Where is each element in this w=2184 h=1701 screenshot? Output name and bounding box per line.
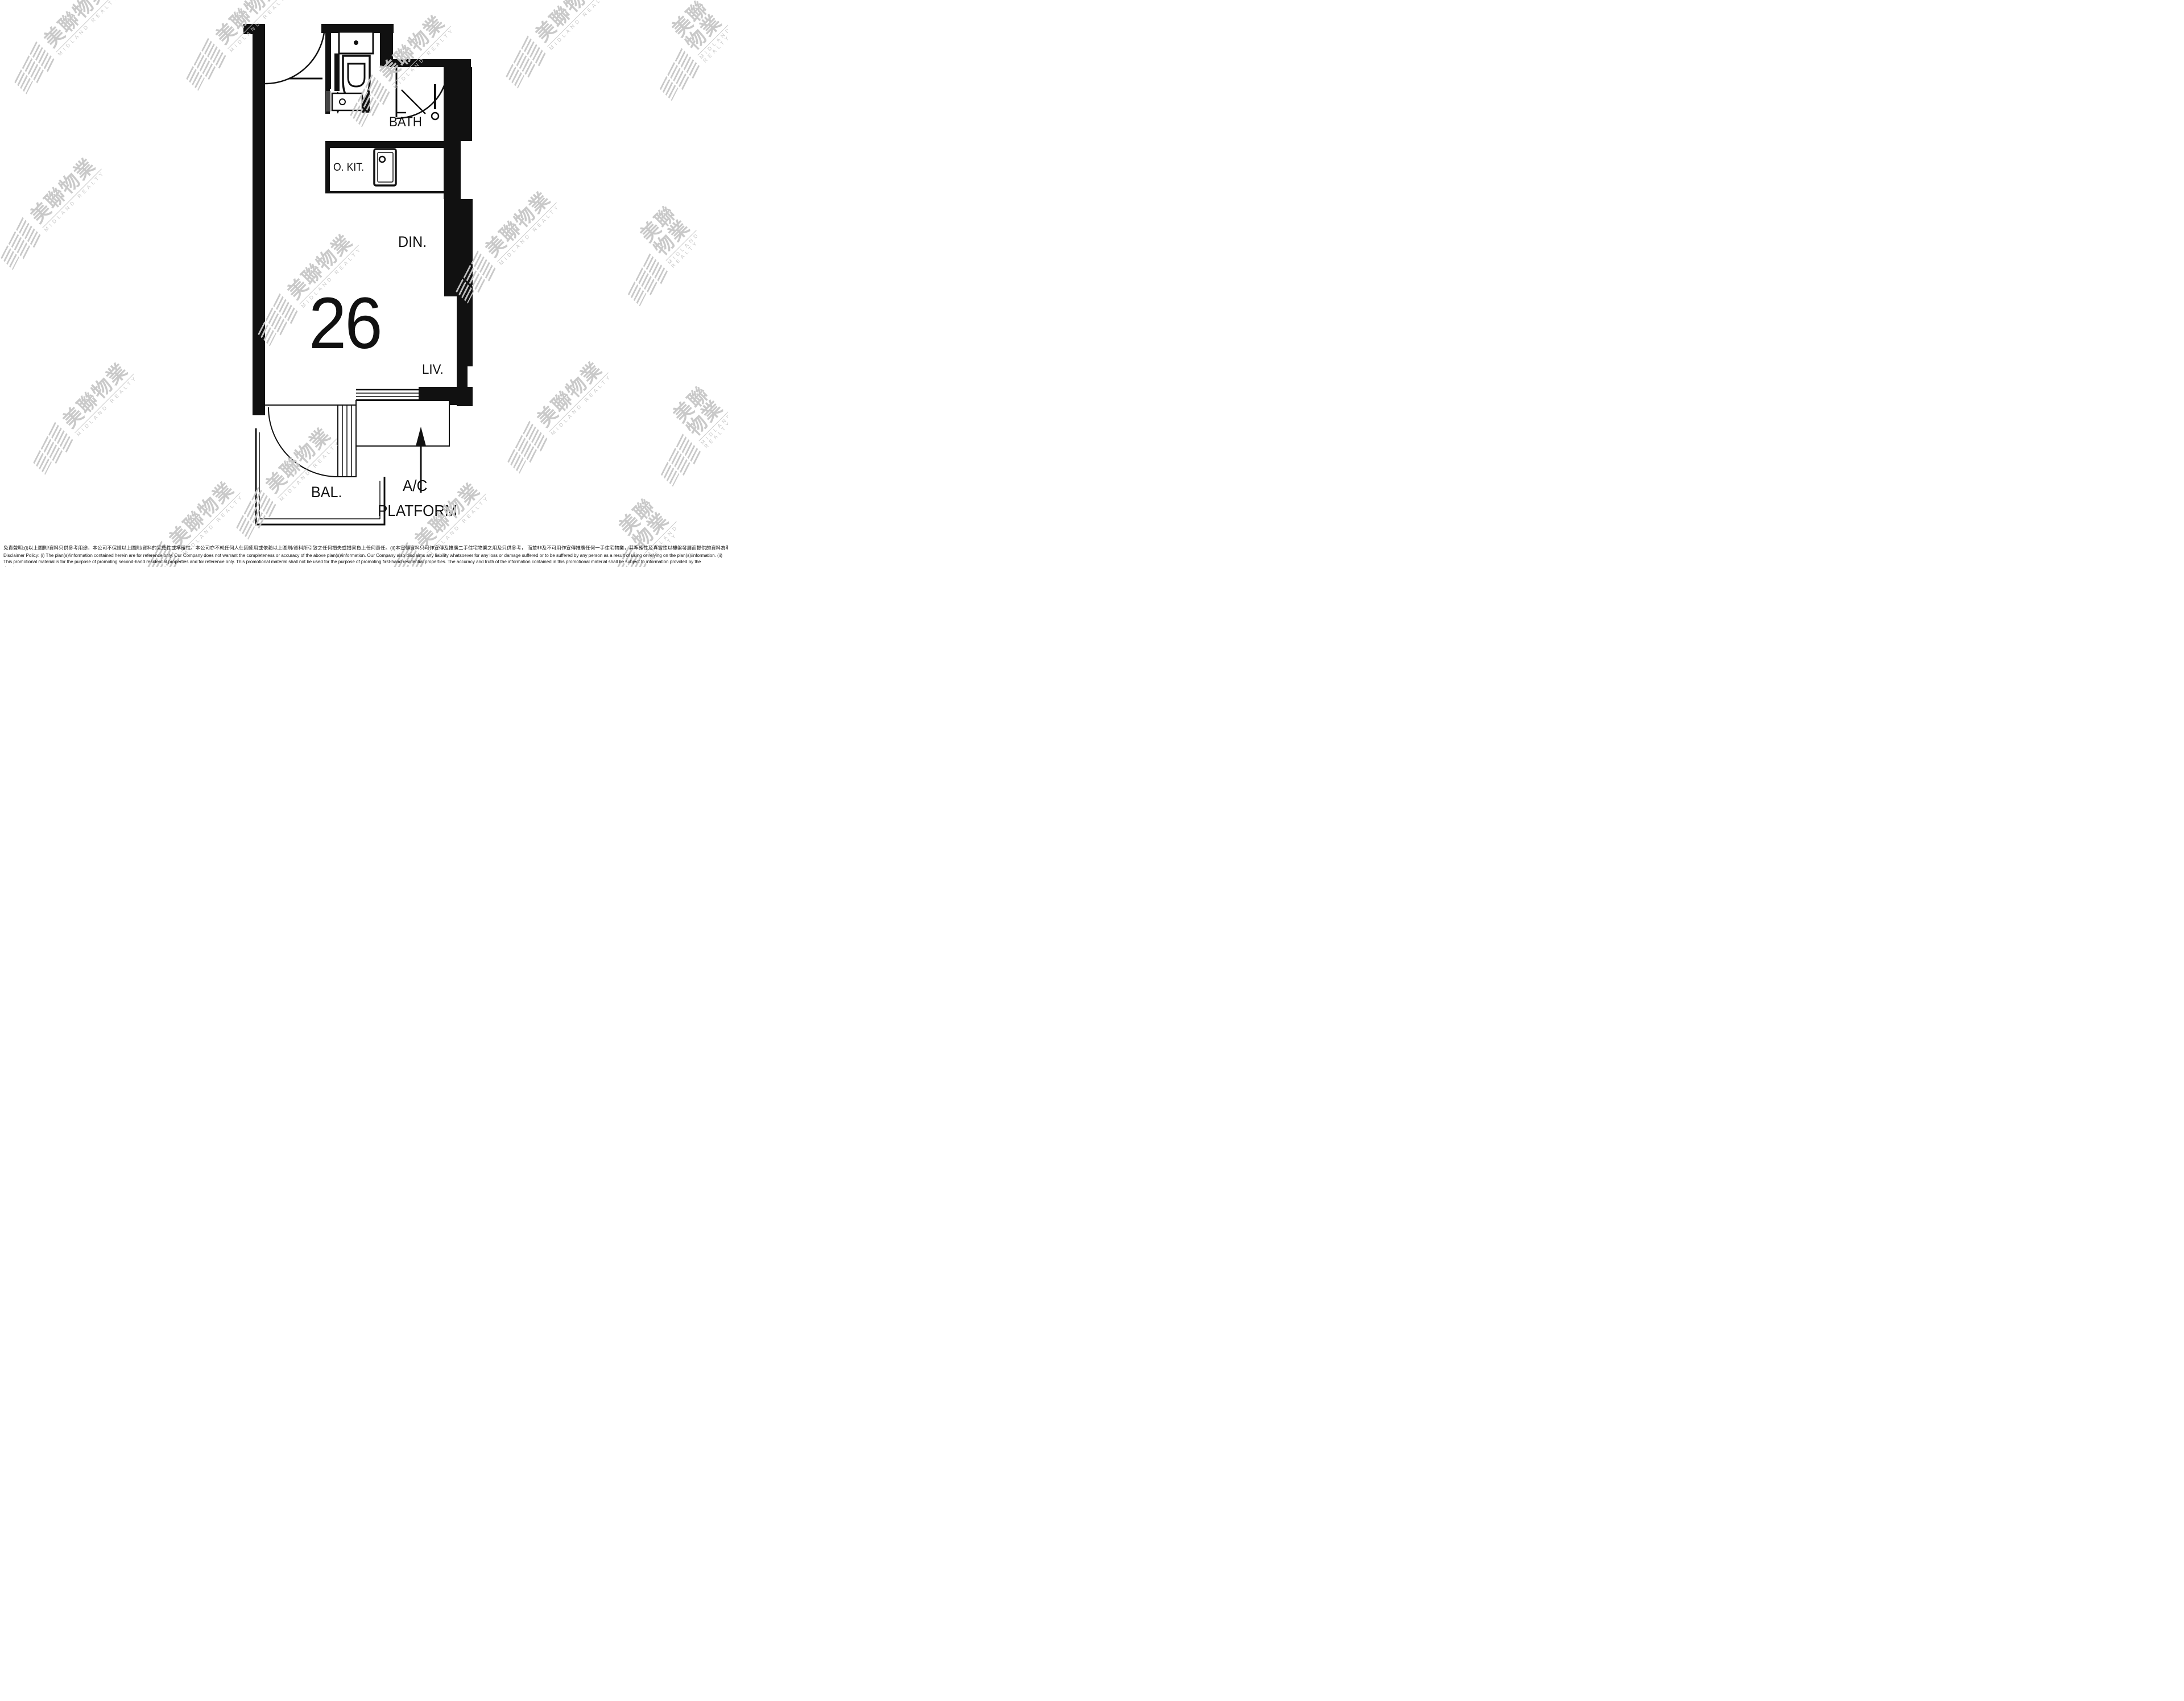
toilet-button xyxy=(354,40,358,45)
wall-bath-right xyxy=(444,67,472,141)
balcony-door-arc xyxy=(268,407,338,477)
label-balcony: BAL. xyxy=(311,485,342,500)
label-dining: DIN. xyxy=(398,234,427,250)
shower-arm xyxy=(402,90,425,114)
label-living: LIV. xyxy=(422,363,444,377)
ac-platform-outline xyxy=(356,401,449,446)
wall-toilet-left xyxy=(325,33,331,89)
disclaimer-chinese: 免責聲明:(i)以上圖則/資料只供參考用途，本公司不保證以上圖則/資料的完整性或… xyxy=(3,544,726,552)
wall-dining-right-thick xyxy=(444,199,473,296)
disclaimer: 免責聲明:(i)以上圖則/資料只供參考用途，本公司不保證以上圖則/資料的完整性或… xyxy=(3,544,726,567)
label-ac: A/C xyxy=(403,478,427,494)
toilet-fixture xyxy=(339,32,373,101)
wall-kitchen-right xyxy=(444,141,461,199)
floorplan-page: BATH O. KIT. DIN. LIV. BAL. A/C PLATFORM… xyxy=(0,0,728,567)
disclaimer-english: Disclaimer Policy: (i) The plan(s)/infor… xyxy=(3,552,726,567)
wall-kitchen-left xyxy=(325,148,330,193)
basin-drain xyxy=(340,99,345,105)
toilet-door-panel xyxy=(326,91,330,112)
shower-head-circle xyxy=(432,113,439,119)
sink-drain xyxy=(379,156,385,162)
wall-kitchen-top xyxy=(325,141,445,148)
basin-outline xyxy=(332,93,362,110)
unit-number: 26 xyxy=(309,287,381,360)
label-open-kitchen: O. KIT. xyxy=(333,162,364,173)
wall-left-outer xyxy=(253,24,265,415)
wall-living-right xyxy=(457,296,473,366)
wall-toilet-left-inner xyxy=(334,53,340,91)
kitchen-sink xyxy=(374,149,396,185)
wall-bath-top xyxy=(380,59,471,67)
toilet-bowl-inner xyxy=(348,64,365,86)
kitchen-counter-edge xyxy=(325,191,445,193)
label-ac-platform: PLATFORM xyxy=(378,503,457,519)
living-window xyxy=(356,390,419,400)
label-bath: BATH xyxy=(389,115,422,129)
entry-door-arc xyxy=(265,24,325,84)
basin-fixture xyxy=(332,93,362,110)
